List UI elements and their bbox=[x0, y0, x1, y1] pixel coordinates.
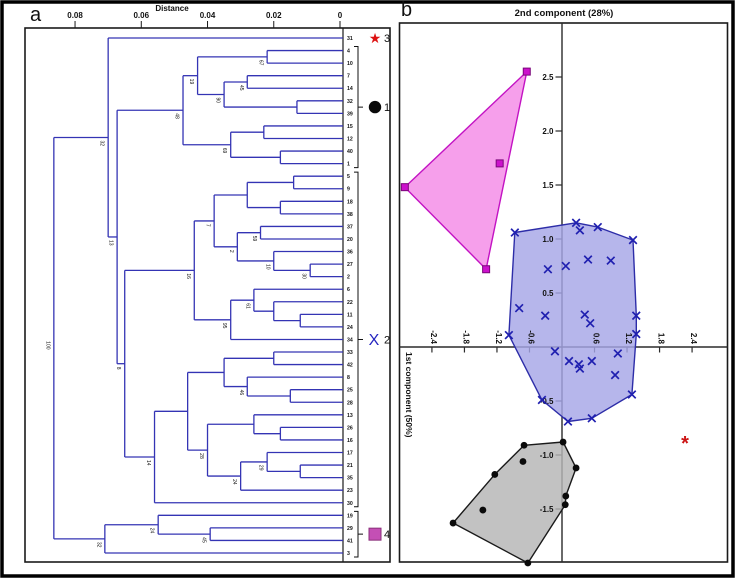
bootstrap-value: 32 bbox=[95, 542, 101, 548]
black-dot-marker bbox=[450, 520, 457, 527]
bootstrap-value: 61 bbox=[244, 303, 250, 309]
pca-x-tick-label: -1.2 bbox=[494, 330, 503, 344]
bootstrap-value: 13 bbox=[108, 240, 114, 246]
leaf-label: 9 bbox=[347, 187, 350, 193]
black-dot-marker bbox=[573, 465, 580, 472]
leaf-label: 7 bbox=[347, 74, 350, 80]
black-dot-marker bbox=[520, 458, 527, 465]
bootstrap-value: 8 bbox=[115, 367, 121, 370]
pca-2nd-component-axis-title: 2nd component (28%) bbox=[515, 8, 614, 19]
panel-a-frame bbox=[25, 28, 390, 562]
bootstrap-value: 16 bbox=[185, 273, 191, 279]
group-number-label: 4 bbox=[384, 529, 390, 541]
pca-x-tick-label: -0.6 bbox=[526, 330, 535, 344]
distance-tick-label: 0.02 bbox=[266, 11, 282, 20]
bootstrap-value: 90 bbox=[215, 98, 221, 104]
bootstrap-value: 7 bbox=[205, 224, 211, 227]
leaf-label: 2 bbox=[347, 275, 350, 281]
pink-square-marker bbox=[483, 266, 490, 273]
figure: a Distance 0.080.060.040.020 67459019694… bbox=[0, 0, 735, 578]
leaf-label: 22 bbox=[347, 300, 353, 306]
leaf-label: 24 bbox=[347, 325, 353, 331]
black-dot-marker bbox=[479, 507, 486, 514]
leaf-label: 13 bbox=[347, 413, 353, 419]
bootstrap-value: 2 bbox=[228, 250, 234, 253]
distance-tick-label: 0 bbox=[338, 11, 343, 20]
pca-1st-component-axis-title: 1st component (50%) bbox=[404, 352, 414, 438]
pink-square-marker bbox=[401, 184, 408, 191]
bootstrap-value: 46 bbox=[238, 390, 244, 396]
leaf-label: 29 bbox=[347, 526, 353, 532]
leaf-label: 11 bbox=[347, 312, 353, 318]
leaf-label: 40 bbox=[347, 149, 353, 155]
leaf-label: 34 bbox=[347, 337, 353, 343]
leaf-label: 19 bbox=[347, 513, 353, 519]
bootstrap-value: 45 bbox=[238, 85, 244, 91]
leaf-label: 38 bbox=[347, 212, 353, 218]
leaf-label: 8 bbox=[347, 375, 350, 381]
black-dot-marker bbox=[562, 501, 569, 508]
pca-y-tick-label: 1.5 bbox=[542, 181, 554, 190]
bootstrap-value: 24 bbox=[231, 479, 237, 485]
panel-a-dendrogram: a Distance 0.080.060.040.020 67459019694… bbox=[25, 4, 390, 562]
bootstrap-value: 29 bbox=[258, 465, 264, 471]
black-dot-marker bbox=[491, 471, 498, 478]
distance-tick-label: 0.04 bbox=[200, 11, 216, 20]
leaf-label: 27 bbox=[347, 262, 353, 268]
red-asterisk-marker: * bbox=[681, 433, 689, 455]
leaf-label: 36 bbox=[347, 250, 353, 256]
pca-y-tick-label: 1.0 bbox=[542, 235, 554, 244]
panel-b-pca-plot: b 2nd component (28%) 1st component (50%… bbox=[400, 0, 728, 566]
bootstrap-value: 69 bbox=[221, 148, 227, 154]
bootstrap-value: 24 bbox=[149, 528, 155, 534]
pca-x-tick-label: -2.4 bbox=[429, 330, 438, 344]
leaf-label: 18 bbox=[347, 199, 353, 205]
bootstrap-value: 45 bbox=[201, 537, 207, 543]
leaf-label: 17 bbox=[347, 451, 353, 457]
leaf-label: 25 bbox=[347, 388, 353, 394]
leaf-label: 41 bbox=[347, 538, 353, 544]
leaf-label: 30 bbox=[347, 501, 353, 507]
leaf-label: 4 bbox=[347, 49, 350, 55]
circle-icon bbox=[369, 101, 381, 113]
group-number-label: 3 bbox=[384, 33, 390, 45]
pca-x-tick-label: 1.2 bbox=[624, 333, 633, 345]
leaf-label: 3 bbox=[347, 551, 350, 557]
black-dot-marker bbox=[521, 442, 528, 449]
bootstrap-value: 32 bbox=[99, 140, 105, 146]
panel-a-label: a bbox=[30, 4, 42, 26]
pca-y-tick-label: 2.0 bbox=[542, 127, 554, 136]
leaf-label: 15 bbox=[347, 124, 353, 130]
leaf-label: 33 bbox=[347, 350, 353, 356]
pca-x-tick-label: 1.8 bbox=[657, 333, 666, 345]
bootstrap-value: 10 bbox=[264, 264, 270, 270]
leaf-label: 39 bbox=[347, 111, 353, 117]
leaf-label: 14 bbox=[347, 86, 353, 92]
distance-tick-label: 0.08 bbox=[67, 11, 83, 20]
bootstrap-value: 67 bbox=[258, 60, 264, 66]
pink-square-marker bbox=[523, 68, 530, 75]
pca-y-tick-label: -0.5 bbox=[540, 397, 554, 406]
bootstrap-value: 28 bbox=[198, 453, 204, 459]
group-number-label: 1 bbox=[384, 102, 390, 114]
leaf-label: 32 bbox=[347, 99, 353, 105]
leaf-label: 10 bbox=[347, 61, 353, 67]
pink-square-marker bbox=[496, 160, 503, 167]
leaf-label: 1 bbox=[347, 162, 350, 168]
black-dot-marker bbox=[562, 493, 569, 500]
leaf-label: 42 bbox=[347, 363, 353, 369]
leaf-label: 31 bbox=[347, 36, 353, 42]
distance-tick-label: 0.06 bbox=[133, 11, 149, 20]
bootstrap-value: 100 bbox=[44, 341, 50, 350]
pca-y-tick-label: 2.5 bbox=[542, 73, 554, 82]
leaf-label: 12 bbox=[347, 136, 353, 142]
leaf-label: 26 bbox=[347, 425, 353, 431]
pca-y-tick-label: 0.5 bbox=[542, 289, 554, 298]
x-icon: X bbox=[369, 332, 380, 349]
leaf-label: 21 bbox=[347, 463, 353, 469]
bootstrap-value: 14 bbox=[145, 460, 151, 466]
bootstrap-value: 30 bbox=[301, 273, 307, 279]
leaf-label: 6 bbox=[347, 287, 350, 293]
pca-x-tick-label: 0.6 bbox=[592, 333, 601, 345]
panel-b-label: b bbox=[401, 0, 412, 21]
black-dot-marker bbox=[524, 560, 531, 567]
bootstrap-value: 48 bbox=[174, 113, 180, 119]
leaf-label: 35 bbox=[347, 476, 353, 482]
pca-y-tick-label: -1.5 bbox=[540, 505, 554, 514]
bootstrap-value: 59 bbox=[251, 236, 257, 242]
black-dot-marker bbox=[560, 439, 567, 446]
bootstrap-value: 95 bbox=[221, 323, 227, 329]
star-icon: ★ bbox=[369, 30, 382, 46]
bootstrap-value: 19 bbox=[188, 79, 194, 85]
leaf-label: 16 bbox=[347, 438, 353, 444]
leaf-label: 37 bbox=[347, 224, 353, 230]
leaf-label: 20 bbox=[347, 237, 353, 243]
distance-axis-title: Distance bbox=[155, 4, 189, 13]
pca-x-tick-label: 2.4 bbox=[689, 333, 698, 345]
pca-x-tick-label: -1.8 bbox=[461, 330, 470, 344]
leaf-label: 5 bbox=[347, 174, 350, 180]
square-icon bbox=[369, 528, 381, 540]
leaf-label: 28 bbox=[347, 400, 353, 406]
group-number-label: 2 bbox=[384, 334, 390, 346]
figure-canvas: a Distance 0.080.060.040.020 67459019694… bbox=[0, 0, 735, 578]
leaf-label: 23 bbox=[347, 488, 353, 494]
pca-y-tick-label: -1.0 bbox=[540, 451, 554, 460]
